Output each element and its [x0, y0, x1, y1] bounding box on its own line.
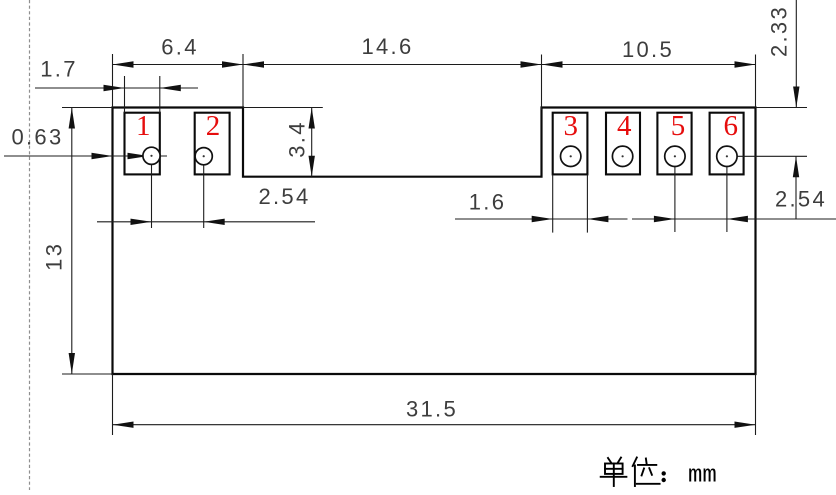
- svg-text:2.54: 2.54: [775, 187, 827, 212]
- svg-text:6.4: 6.4: [161, 35, 198, 60]
- svg-text:1.6: 1.6: [469, 190, 506, 215]
- svg-text:1.7: 1.7: [40, 57, 77, 82]
- svg-text:10.5: 10.5: [622, 37, 674, 62]
- svg-text:mm: mm: [688, 463, 717, 490]
- svg-text:1: 1: [136, 110, 151, 142]
- svg-text:2: 2: [206, 110, 221, 142]
- svg-text:14.6: 14.6: [361, 34, 413, 59]
- svg-text:31.5: 31.5: [406, 397, 458, 422]
- svg-text:3: 3: [563, 110, 578, 142]
- svg-text:4: 4: [617, 110, 632, 142]
- svg-text:3.4: 3.4: [285, 120, 310, 157]
- svg-text:6: 6: [724, 110, 739, 142]
- svg-text:0.63: 0.63: [11, 125, 63, 150]
- svg-text:5: 5: [671, 110, 686, 142]
- svg-text:2.33: 2.33: [767, 5, 792, 57]
- svg-text:13: 13: [42, 242, 67, 271]
- svg-text:2.54: 2.54: [258, 184, 310, 209]
